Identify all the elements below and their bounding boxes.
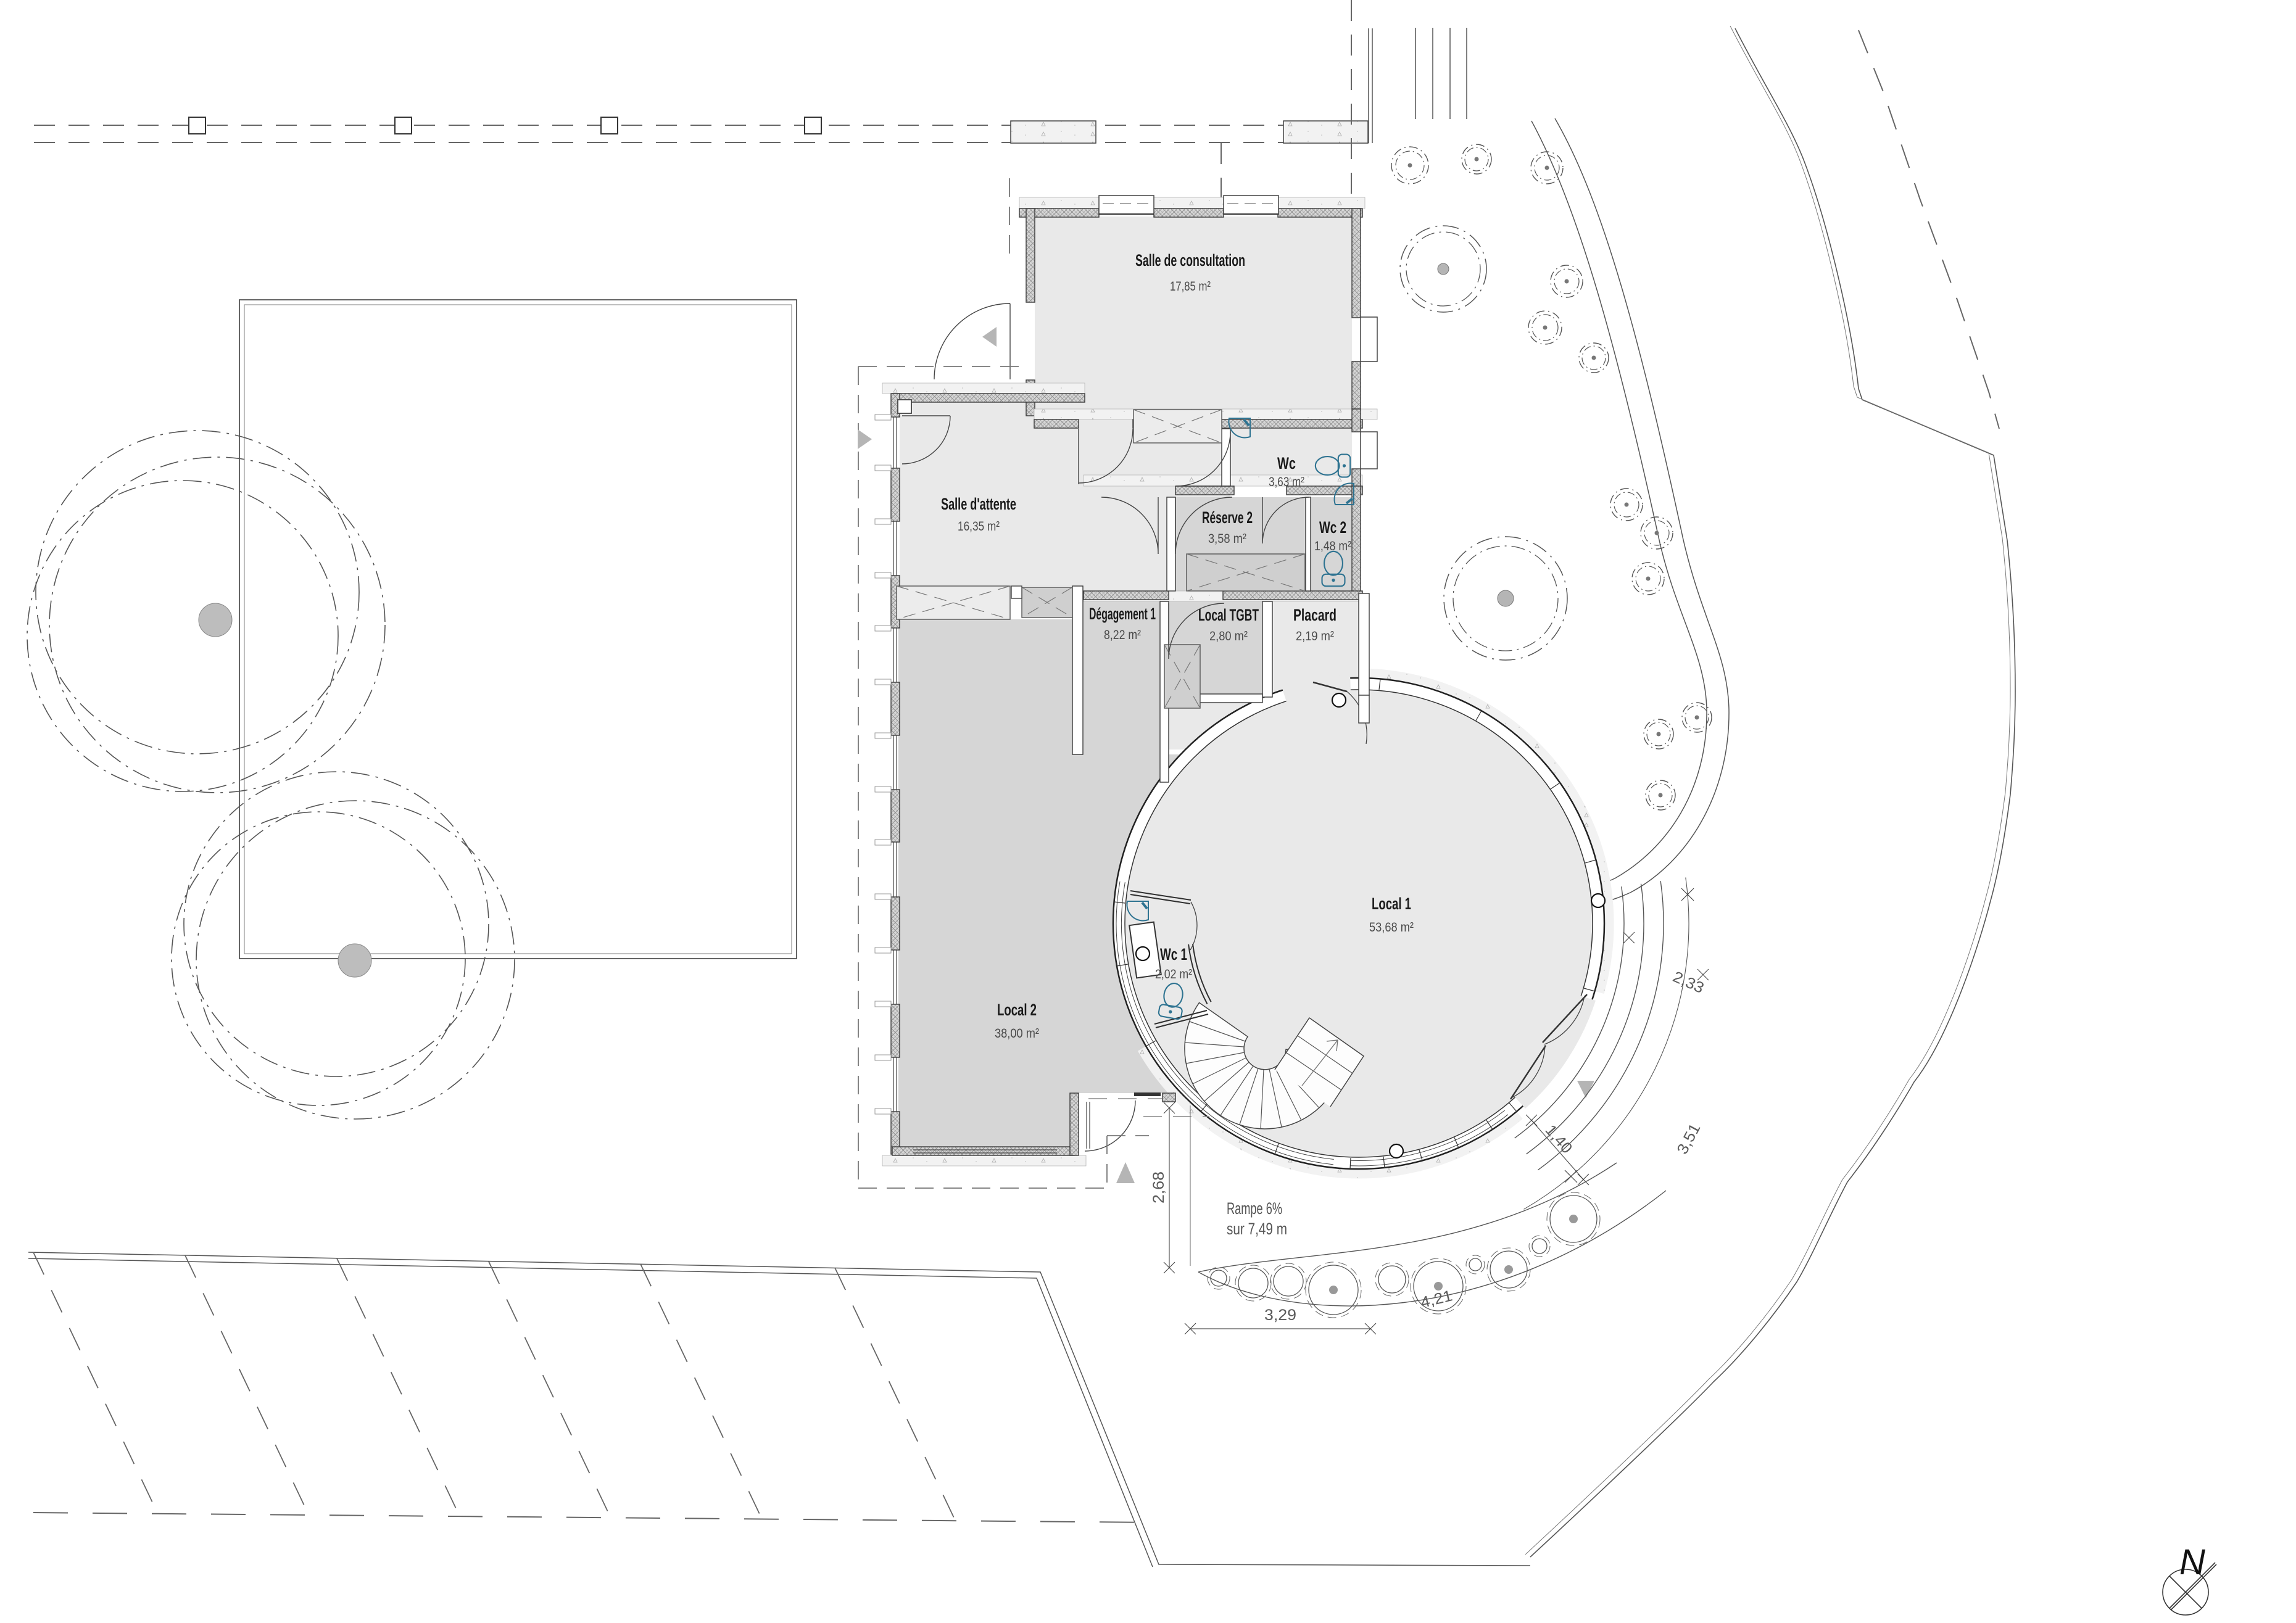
- svg-text:3,63 m²: 3,63 m²: [1269, 475, 1304, 489]
- svg-text:3,58 m²: 3,58 m²: [1208, 532, 1246, 546]
- svg-text:Salle d'attente: Salle d'attente: [941, 495, 1016, 513]
- svg-text:3,29: 3,29: [1264, 1307, 1296, 1324]
- svg-text:2,68: 2,68: [1150, 1171, 1167, 1204]
- svg-text:Wc 1: Wc 1: [1160, 945, 1187, 964]
- svg-text:sur 7,49 m: sur 7,49 m: [1227, 1220, 1287, 1238]
- svg-text:38,00 m²: 38,00 m²: [995, 1026, 1039, 1041]
- svg-text:Dégagement 1: Dégagement 1: [1089, 605, 1156, 623]
- svg-text:2,80 m²: 2,80 m²: [1209, 629, 1248, 643]
- svg-text:17,85 m²: 17,85 m²: [1170, 279, 1211, 294]
- svg-text:2,19 m²: 2,19 m²: [1296, 629, 1334, 643]
- svg-text:16,35 m²: 16,35 m²: [958, 519, 1000, 534]
- svg-text:Wc 2: Wc 2: [1319, 518, 1346, 537]
- svg-text:2,02 m²: 2,02 m²: [1155, 967, 1192, 981]
- svg-text:Rampe 6%: Rampe 6%: [1227, 1199, 1282, 1218]
- svg-text:N: N: [2179, 1542, 2205, 1582]
- svg-text:Salle de consultation: Salle de consultation: [1135, 251, 1245, 270]
- svg-text:8,22 m²: 8,22 m²: [1104, 628, 1141, 642]
- svg-text:Réserve 2: Réserve 2: [1202, 508, 1253, 527]
- svg-text:Wc: Wc: [1277, 454, 1296, 473]
- svg-text:Local TGBT: Local TGBT: [1198, 606, 1259, 624]
- svg-text:Local 1: Local 1: [1372, 894, 1411, 913]
- svg-text:Placard: Placard: [1293, 606, 1337, 624]
- svg-text:Local 2: Local 2: [997, 1001, 1037, 1019]
- svg-text:53,68 m²: 53,68 m²: [1369, 920, 1414, 935]
